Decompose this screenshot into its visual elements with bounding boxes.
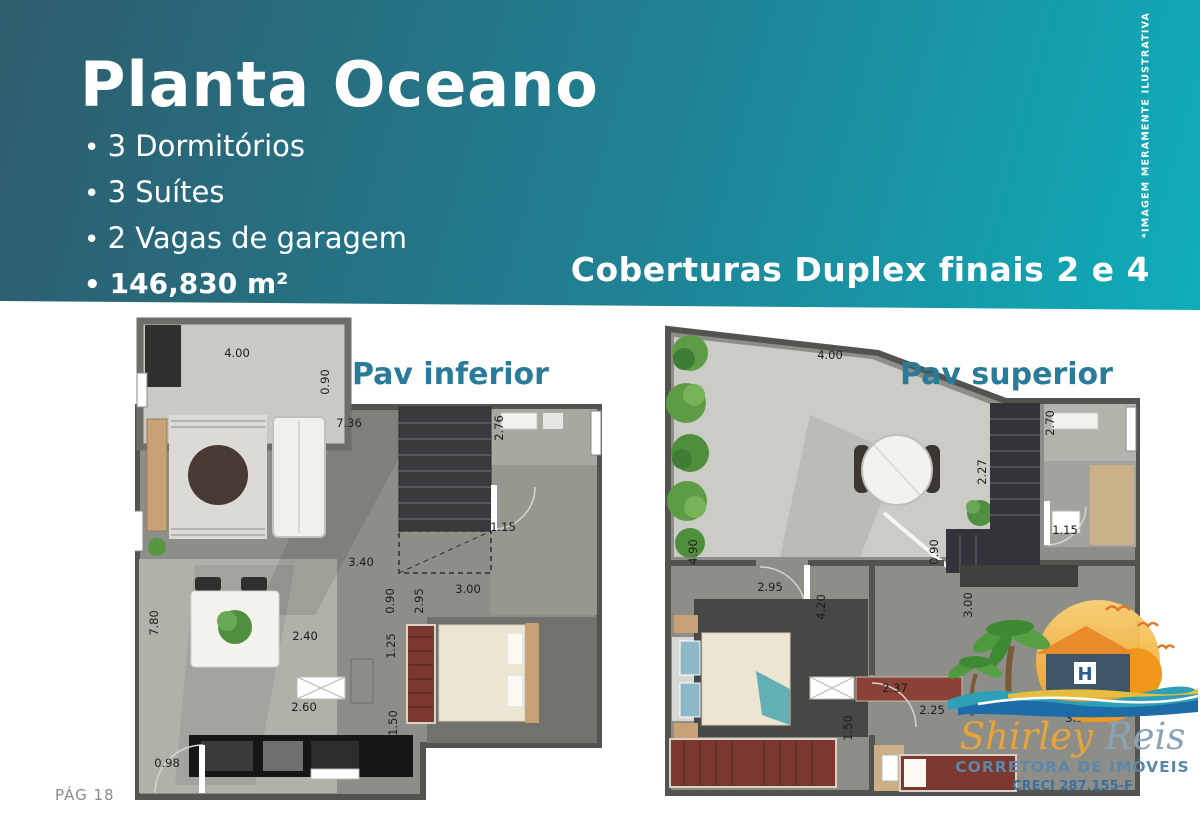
- subtitle: Coberturas Duplex finais 2 e 4: [571, 250, 1150, 289]
- dimension-label: 4.00: [224, 346, 250, 360]
- dimension-label: 1.50: [841, 715, 855, 741]
- logo-creci: CRECI 287.155-F: [945, 779, 1200, 794]
- dimension-label: 2.95: [757, 580, 783, 594]
- logo-brand-last: Reis: [1105, 715, 1186, 758]
- waves-icon: [948, 686, 1198, 717]
- dimension-label: 2.60: [291, 700, 317, 714]
- dimension-label: 2.25: [919, 703, 945, 717]
- dimension-label: 0.98: [154, 756, 180, 770]
- brand-logo: H Shirley Reis CORRETORA DE IMÓVEIS CREC…: [945, 592, 1200, 820]
- dimension-label: 3.00: [455, 582, 481, 596]
- dimension-label: 2.95: [412, 588, 426, 614]
- feature-item: 3 Dormitórios: [84, 126, 407, 172]
- dimension-label: 7.80: [147, 610, 161, 636]
- dimension-label: 7.36: [336, 416, 362, 430]
- dimension-label: 2.27: [975, 459, 989, 485]
- svg-text:H: H: [1077, 664, 1092, 685]
- plan-label-inferior: Pav inferior: [352, 357, 549, 392]
- logo-tagline: CORRETORA DE IMÓVEIS: [945, 758, 1200, 776]
- feature-list: 3 Dormitórios 3 Suítes 2 Vagas de garage…: [84, 126, 407, 310]
- feature-item-area: 146,830 m²: [84, 264, 407, 310]
- dimension-label: 3.40: [348, 555, 374, 569]
- page-number: PÁG 18: [55, 786, 115, 804]
- feature-item: 3 Suítes: [84, 172, 407, 218]
- dimension-label: 0.90: [318, 369, 332, 395]
- flyer-page: { "header": { "title": "Planta Oceano", …: [0, 0, 1200, 821]
- dimension-label: 2.37: [882, 681, 908, 695]
- page-title: Planta Oceano: [80, 48, 599, 121]
- dimension-label: 2.40: [292, 629, 318, 643]
- dimension-label: 1.15: [1052, 523, 1078, 537]
- dimension-label: 1.50: [386, 710, 400, 736]
- plan-label-superior: Pav superior: [900, 357, 1113, 392]
- floorplan-inferior: Pav inferior 4.000.907.362.761.153.400.9…: [135, 315, 605, 807]
- dimension-label: 4.20: [814, 594, 828, 620]
- dimension-label: 4.90: [686, 539, 700, 565]
- logo-brand-name: Shirley Reis: [945, 718, 1200, 756]
- dimension-label: 1.15: [490, 520, 516, 534]
- dimension-label: 4.00: [817, 348, 843, 362]
- dimension-label: 0.90: [383, 588, 397, 614]
- feature-item: 2 Vagas de garagem: [84, 218, 407, 264]
- dimension-label: 1.25: [384, 633, 398, 659]
- disclaimer-vertical-text: *IMAGEM MERAMENTE ILUSTRATIVA: [1141, 12, 1152, 238]
- logo-brand-first: Shirley: [960, 715, 1093, 758]
- logo-graphic: H: [948, 592, 1198, 722]
- dimension-label: 2.76: [492, 415, 506, 441]
- dimension-label: 0.90: [927, 539, 941, 565]
- dimension-label: 2.70: [1043, 410, 1057, 436]
